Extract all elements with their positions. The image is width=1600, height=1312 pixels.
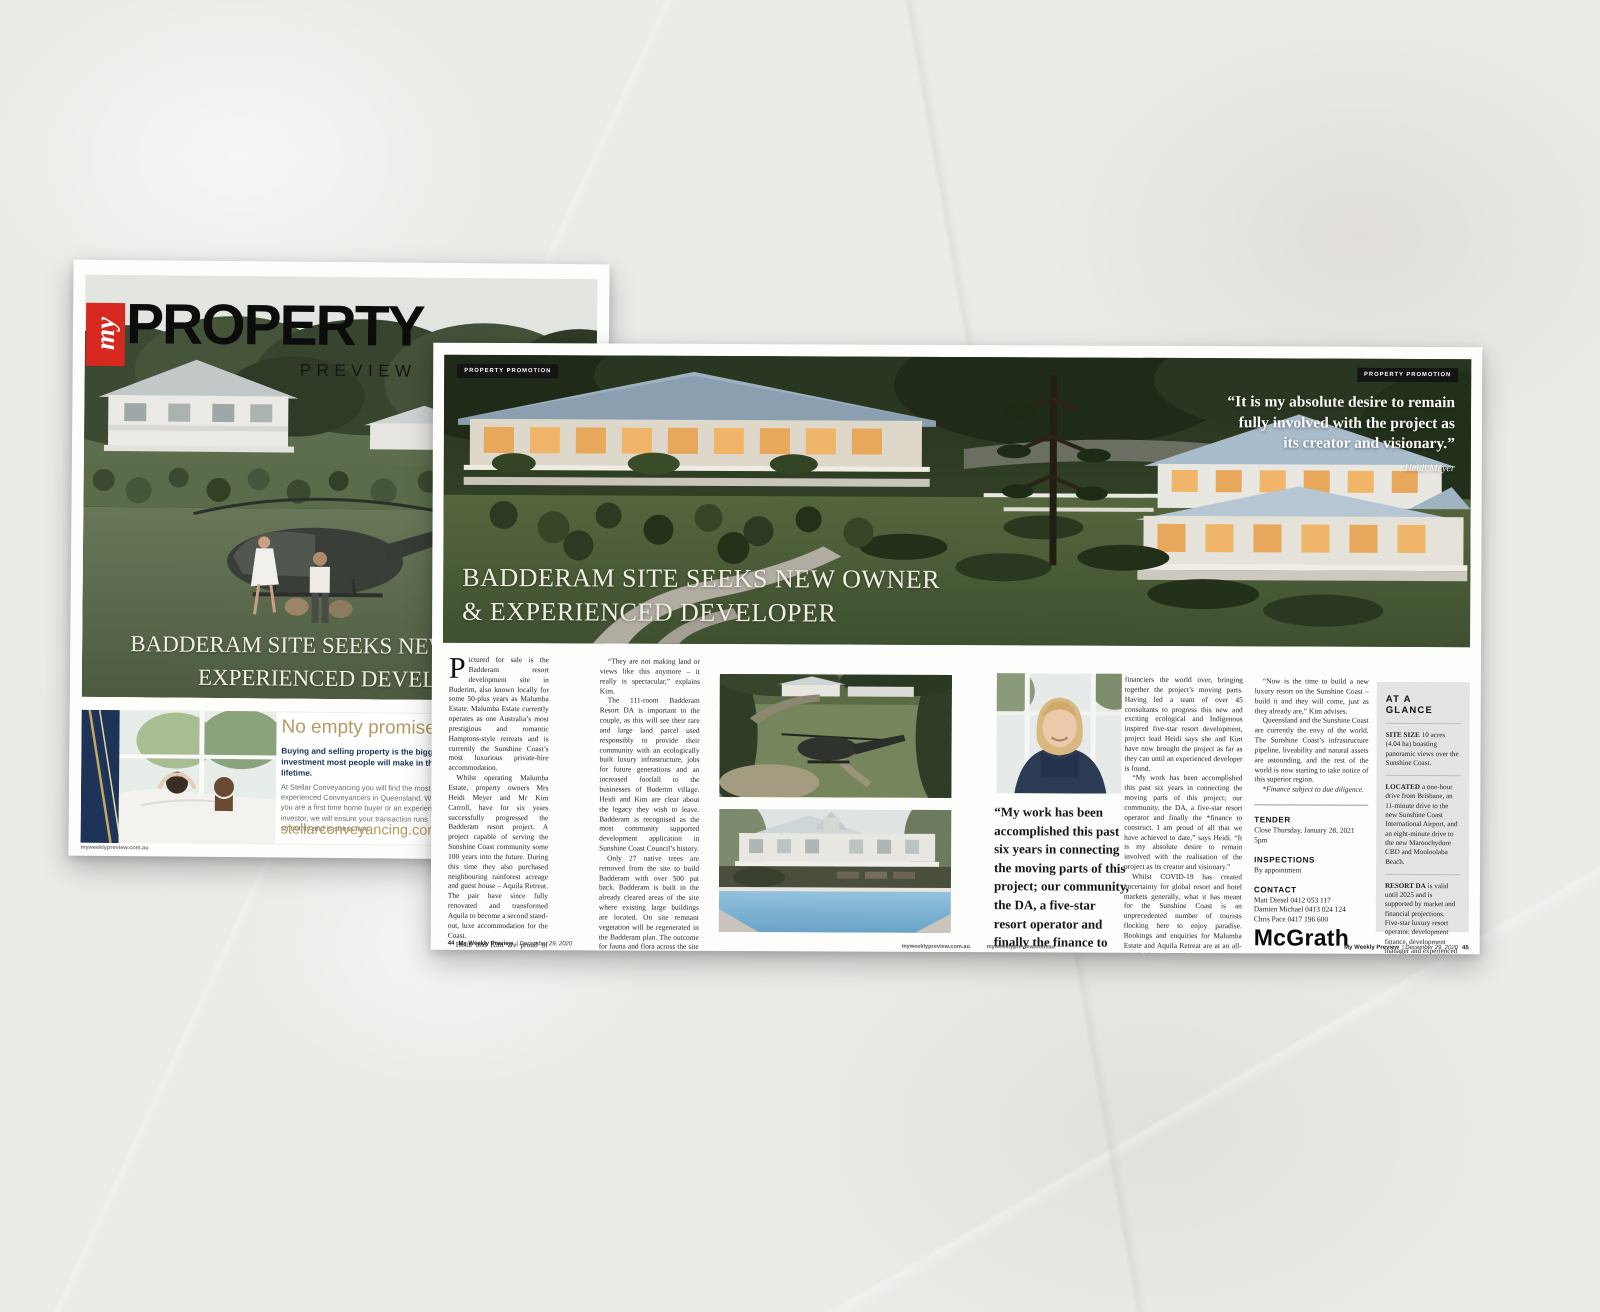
inspections-label: INSPECTIONS (1254, 855, 1368, 865)
glance-item-text: is valid until 2025 and is supported by … (1385, 882, 1458, 954)
heidi-portrait-photo (996, 673, 1122, 794)
mcgrath-logo: McGrath (1254, 933, 1368, 943)
masthead-preview: PREVIEW (73, 359, 417, 382)
footer-left-page: 44My Weekly Preview| December 29, 2020 (448, 941, 573, 948)
glance-item-lead: RESORT DA (1385, 882, 1426, 890)
hero-photo: PROPERTY PROMOTION PROPERTY PROMOTION “I… (443, 355, 1471, 647)
drop-cap: P (449, 655, 469, 681)
wall-background: BADDERAM SITE SEEKS NEW EXPERIENCED DEVE… (0, 0, 1600, 1312)
article-column-4: “Now is the time to build a new luxury r… (1254, 676, 1369, 944)
aerial-helicopter-photo (719, 674, 952, 798)
my-logo-box: my (86, 303, 126, 366)
page-number-45: 45 (1462, 945, 1469, 951)
footer-issue-name: My Weekly Preview (458, 941, 513, 947)
masthead-property: PROPERTY (126, 296, 424, 356)
footer-url-left-page: myweeklypreview.com.au (902, 944, 970, 950)
glance-item: LOCATEDa one-hour drive from Brisbane, a… (1385, 775, 1460, 867)
footer-issue-name: My Weekly Preview (1344, 945, 1399, 951)
pool-photo (719, 809, 952, 933)
property-promotion-tag-left: PROPERTY PROMOTION (457, 364, 558, 378)
ad-photo-couple-on-couch (81, 710, 277, 845)
article-column-1: Pictured for sale is the Badderam resort… (448, 655, 549, 939)
at-a-glance-title: AT A GLANCE (1386, 694, 1461, 716)
tender-value: Close Thursday, January 28, 2021 5pm (1254, 825, 1368, 845)
glance-item-lead: SITE SIZE (1386, 731, 1420, 739)
spread-headline-line1: BADDERAM SITE SEEKS NEW OWNER (462, 561, 940, 597)
article-column-3: financiers the world over, bringing toge… (1124, 675, 1243, 944)
tender-label: TENDER (1254, 815, 1368, 825)
contact-line: Damien Michael 0413 024 124 (1254, 905, 1368, 915)
article-column-2: “They are not making land or views like … (599, 656, 700, 939)
contact-line: Chris Pace 0417 196 600 (1254, 914, 1368, 924)
pull-quote: “My work has been accomplished this past… (993, 803, 1131, 954)
paragraph: Pictured for sale is the Badderam resort… (448, 655, 549, 774)
inspections-value: By appointment (1254, 865, 1368, 875)
finance-disclaimer: *Finance subject to due diligence. (1254, 785, 1368, 795)
paragraph: Whilst operating Malumba Estate, propert… (448, 773, 549, 941)
hero-quote: “It is my absolute desire to remain full… (1220, 392, 1455, 474)
paragraph: “They are not making land or views like … (600, 656, 700, 696)
paragraph: Whilst COVID-19 has created uncertainty … (1124, 872, 1242, 955)
footer-issue-date: | December 29, 2020 (516, 941, 572, 947)
divider (1254, 804, 1368, 805)
paragraph: The 111-room Badderam Resort DA is impor… (599, 696, 700, 854)
paragraph: financiers the world over, bringing toge… (1124, 675, 1242, 774)
contact-label: CONTACT (1254, 885, 1368, 895)
paragraph: “Now is the time to build a new luxury r… (1255, 676, 1369, 716)
at-a-glance-box: AT A GLANCE SITE SIZE10 acres (4.04 ha) … (1376, 682, 1470, 932)
contact-line: Matt Diesel 0412 053 117 (1254, 895, 1368, 905)
footer-right-page: My Weekly Preview| December 29, 202045 (1344, 945, 1469, 952)
hero-quote-attribution: Heidi Meyer (1220, 462, 1455, 474)
spread-headline: BADDERAM SITE SEEKS NEW OWNER & EXPERIEN… (462, 561, 940, 631)
my-logo-text: my (92, 302, 120, 365)
page-number-44: 44 (448, 941, 455, 947)
property-promotion-tag-right: PROPERTY PROMOTION (1357, 368, 1458, 382)
paragraph: Queensland and the Sunshine Coast are cu… (1254, 716, 1368, 785)
footer-issue-date: | December 29, 2020 (1402, 945, 1458, 951)
paragraph: “My work has been accomplished this past… (1124, 773, 1242, 872)
spread-headline-line2: & EXPERIENCED DEVELOPER (462, 595, 940, 631)
hero-quote-text: “It is my absolute desire to remain full… (1220, 392, 1455, 455)
cover-footer-url: myweeklypreview.com.au (80, 845, 148, 852)
glance-item-lead: LOCATED (1385, 783, 1420, 791)
glance-item: SITE SIZE10 acres (4.04 ha) boasting pan… (1385, 723, 1460, 769)
paragraph: Only 27 native trees are removed from th… (599, 853, 699, 954)
footer-url-right-page: myweeklypreview.com.au (987, 944, 1055, 950)
glance-item: RESORT DAis valid until 2025 and is supp… (1385, 874, 1460, 955)
glance-item-text: a one-hour drive from Brisbane, an 11-mi… (1385, 783, 1457, 865)
magazine-spread: PROPERTY PROMOTION PROPERTY PROMOTION “I… (431, 343, 1483, 955)
